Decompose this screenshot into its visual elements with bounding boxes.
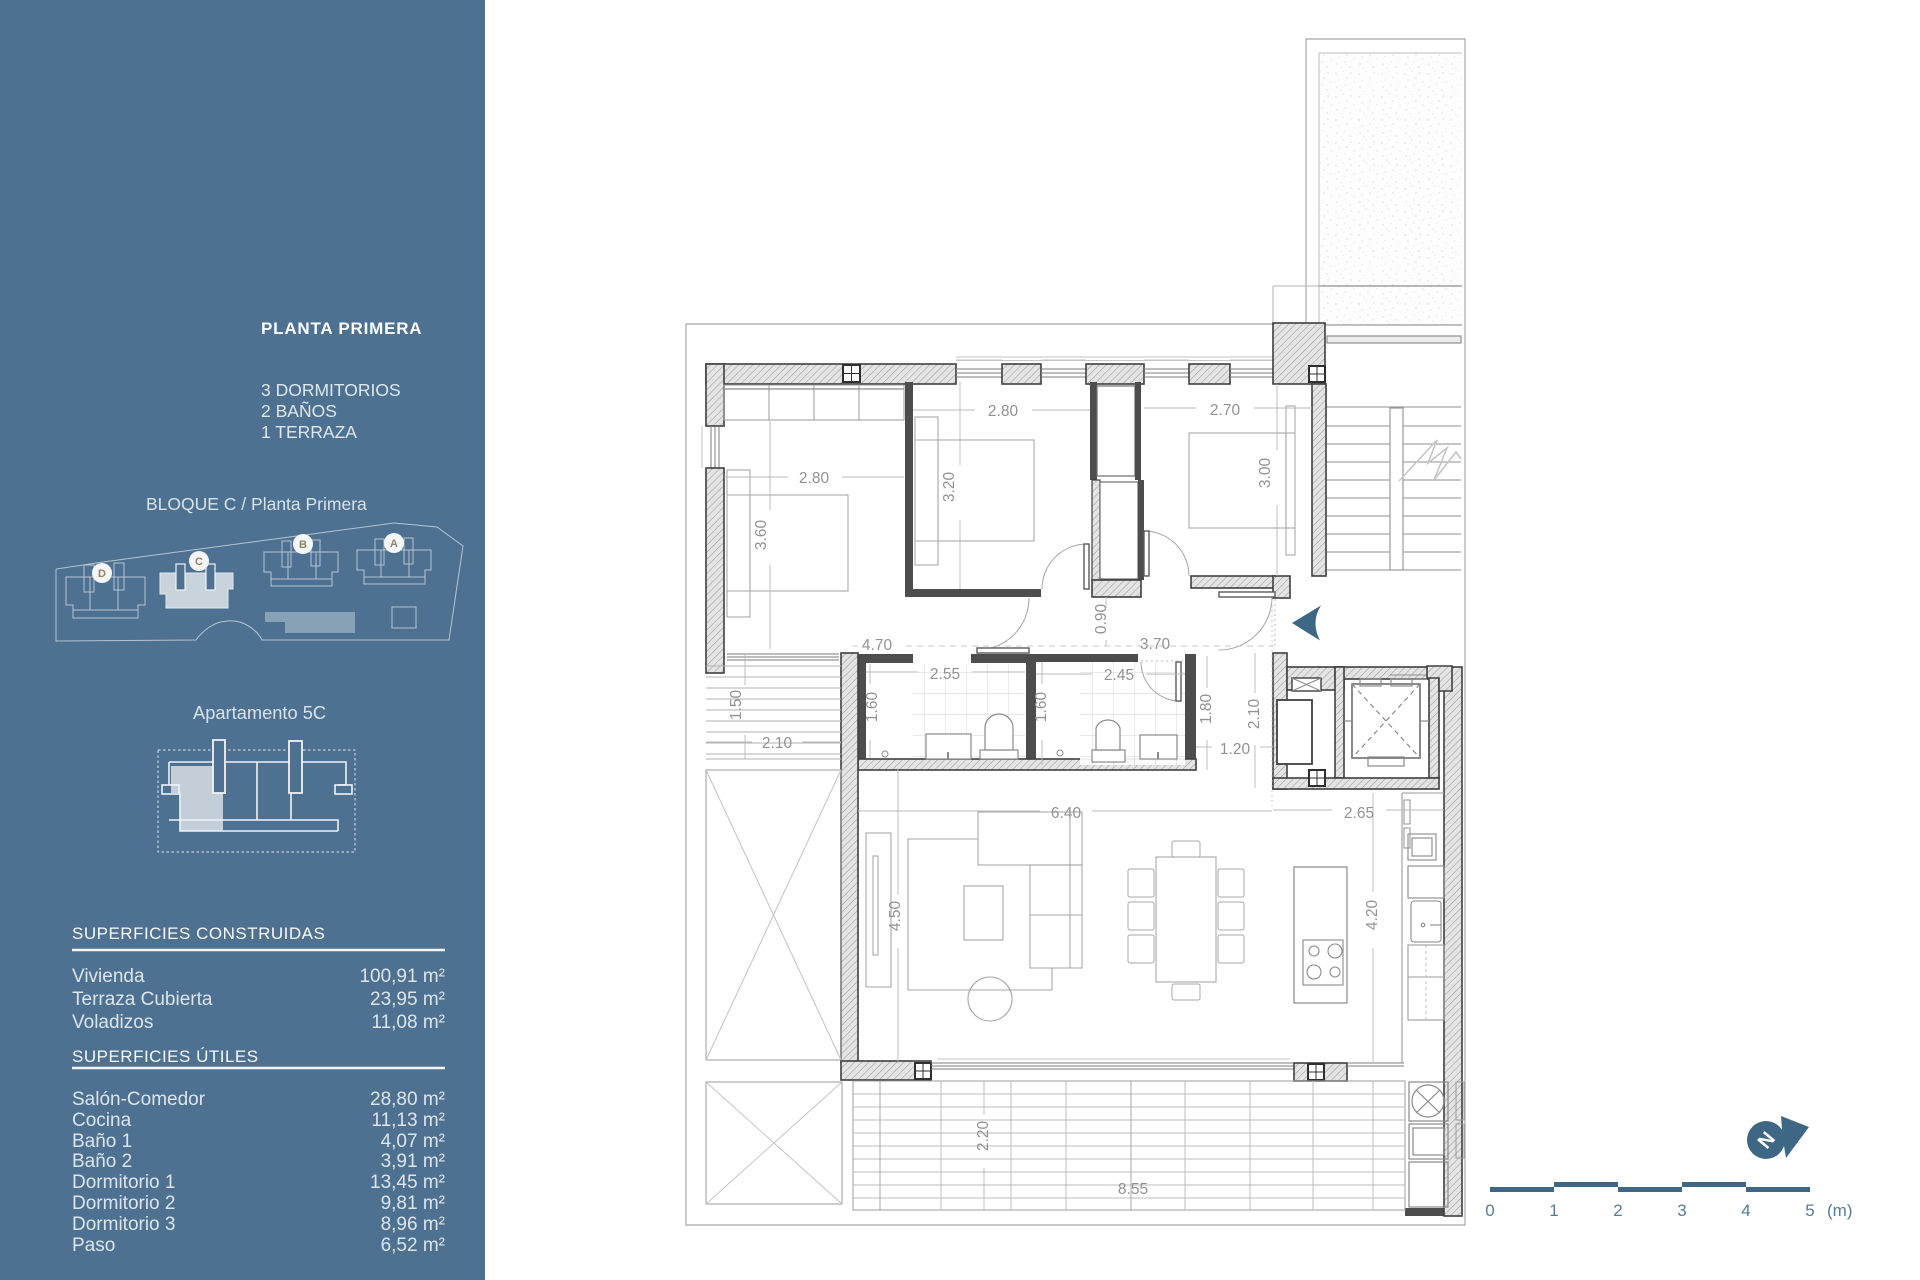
svg-text:3 DORMITORIOS: 3 DORMITORIOS (261, 380, 401, 400)
svg-text:100,91 m²: 100,91 m² (359, 966, 445, 987)
svg-text:1.20: 1.20 (1220, 741, 1251, 758)
svg-text:11,08 m²: 11,08 m² (371, 1012, 445, 1033)
svg-text:3.20: 3.20 (941, 472, 958, 503)
svg-text:2.55: 2.55 (930, 666, 960, 683)
svg-text:3: 3 (1677, 1201, 1686, 1220)
svg-text:Cocina: Cocina (72, 1110, 132, 1131)
svg-text:3.70: 3.70 (1140, 636, 1171, 653)
svg-text:2 BAÑOS: 2 BAÑOS (261, 400, 337, 421)
svg-text:4.70: 4.70 (862, 637, 893, 654)
svg-text:28,80 m²: 28,80 m² (370, 1089, 445, 1110)
svg-text:Terraza Cubierta: Terraza Cubierta (72, 989, 213, 1010)
svg-text:3,91 m²: 3,91 m² (381, 1151, 445, 1172)
svg-text:1.50: 1.50 (728, 690, 745, 721)
svg-text:2.70: 2.70 (1210, 402, 1241, 419)
svg-text:SUPERFICIES CONSTRUIDAS: SUPERFICIES CONSTRUIDAS (72, 924, 325, 943)
svg-text:4: 4 (1741, 1201, 1750, 1220)
svg-text:Dormitorio 1: Dormitorio 1 (72, 1172, 175, 1193)
svg-text:1.60: 1.60 (864, 692, 881, 723)
svg-text:2.20: 2.20 (975, 1121, 992, 1152)
svg-text:SUPERFICIES ÚTILES: SUPERFICIES ÚTILES (72, 1047, 259, 1066)
svg-text:Dormitorio 2: Dormitorio 2 (72, 1193, 175, 1214)
svg-text:1.80: 1.80 (1198, 694, 1215, 725)
svg-text:B: B (299, 539, 307, 551)
svg-text:0.90: 0.90 (1093, 604, 1110, 635)
svg-text:Apartamento 5C: Apartamento 5C (193, 702, 326, 723)
svg-text:6.40: 6.40 (1051, 805, 1082, 822)
svg-text:Vivienda: Vivienda (72, 966, 145, 987)
svg-text:4.50: 4.50 (887, 901, 904, 932)
svg-text:(m): (m) (1827, 1201, 1852, 1220)
svg-text:BLOQUE C / Planta Primera: BLOQUE C / Planta Primera (146, 494, 367, 514)
svg-text:11,13 m²: 11,13 m² (371, 1110, 445, 1131)
svg-text:2.10: 2.10 (1246, 699, 1263, 730)
svg-text:2.10: 2.10 (762, 735, 793, 752)
svg-text:23,95 m²: 23,95 m² (370, 989, 445, 1010)
svg-text:Voladizos: Voladizos (72, 1012, 153, 1033)
svg-text:2.80: 2.80 (799, 470, 830, 487)
svg-text:2.65: 2.65 (1344, 805, 1374, 822)
svg-text:Salón-Comedor: Salón-Comedor (72, 1089, 206, 1110)
svg-text:9,81 m²: 9,81 m² (381, 1193, 445, 1214)
svg-text:PLANTA PRIMERA: PLANTA PRIMERA (261, 319, 422, 338)
svg-text:2: 2 (1613, 1201, 1622, 1220)
svg-text:3.00: 3.00 (1257, 458, 1274, 489)
svg-text:13,45 m²: 13,45 m² (370, 1172, 445, 1193)
svg-text:2.80: 2.80 (988, 403, 1019, 420)
svg-text:2.45: 2.45 (1104, 667, 1134, 684)
svg-text:Baño 1: Baño 1 (72, 1131, 132, 1152)
svg-text:8,96 m²: 8,96 m² (381, 1214, 445, 1235)
svg-text:4,07 m²: 4,07 m² (381, 1131, 445, 1152)
svg-text:3.60: 3.60 (753, 520, 770, 551)
svg-text:0: 0 (1485, 1201, 1494, 1220)
svg-text:5: 5 (1805, 1201, 1814, 1220)
svg-text:1: 1 (1549, 1201, 1558, 1220)
svg-text:Paso: Paso (72, 1235, 115, 1256)
svg-text:8.55: 8.55 (1118, 1181, 1148, 1198)
svg-text:D: D (98, 568, 106, 580)
svg-text:Baño 2: Baño 2 (72, 1151, 132, 1172)
svg-text:A: A (390, 538, 398, 550)
svg-text:C: C (195, 556, 203, 568)
svg-text:4.20: 4.20 (1364, 900, 1381, 931)
svg-text:Dormitorio 3: Dormitorio 3 (72, 1214, 175, 1235)
svg-text:1.60: 1.60 (1033, 692, 1050, 723)
svg-text:6,52 m²: 6,52 m² (381, 1235, 445, 1256)
svg-text:1 TERRAZA: 1 TERRAZA (261, 422, 357, 442)
